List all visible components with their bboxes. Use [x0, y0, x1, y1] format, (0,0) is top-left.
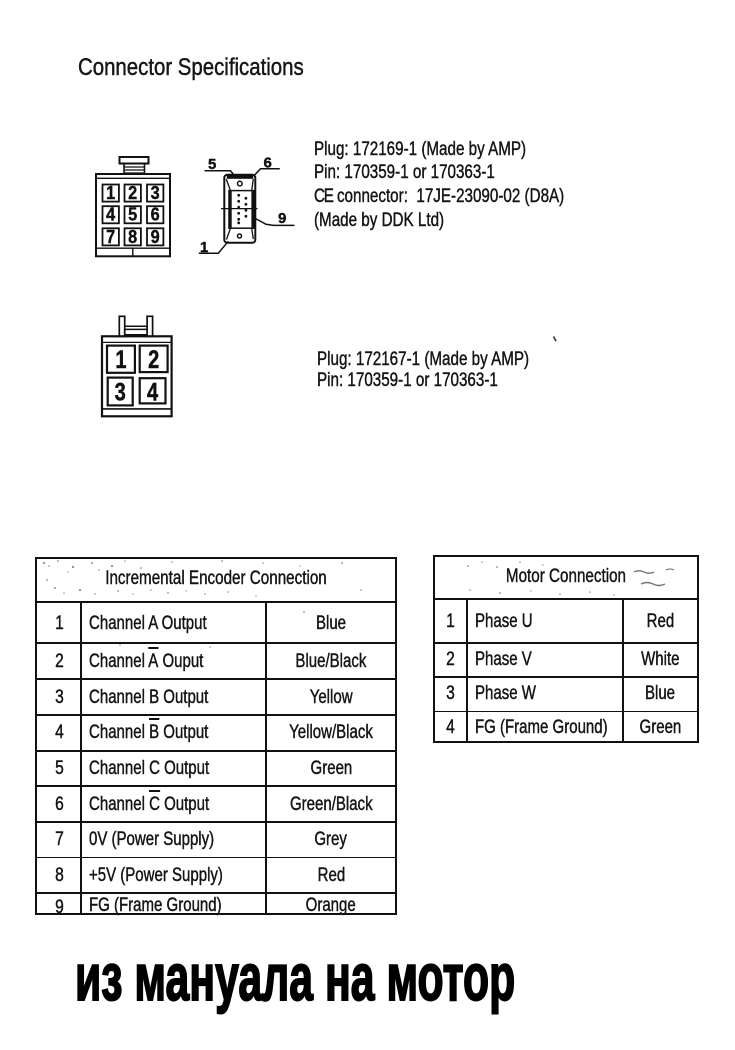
svg-text:2: 2 — [128, 182, 137, 203]
svg-text:3: 3 — [115, 378, 126, 406]
svg-text:2: 2 — [148, 346, 159, 374]
svg-text:1: 1 — [115, 346, 126, 374]
svg-text:8: 8 — [128, 226, 137, 247]
svg-text:5: 5 — [128, 204, 137, 225]
svg-text:1: 1 — [106, 182, 115, 203]
svg-text:4: 4 — [147, 378, 158, 406]
svg-text:6: 6 — [151, 204, 160, 225]
svg-text:3: 3 — [151, 182, 160, 203]
svg-text:9: 9 — [278, 210, 286, 227]
svg-text:9: 9 — [151, 226, 160, 247]
svg-text:7: 7 — [106, 226, 115, 247]
svg-text:4: 4 — [106, 204, 115, 225]
